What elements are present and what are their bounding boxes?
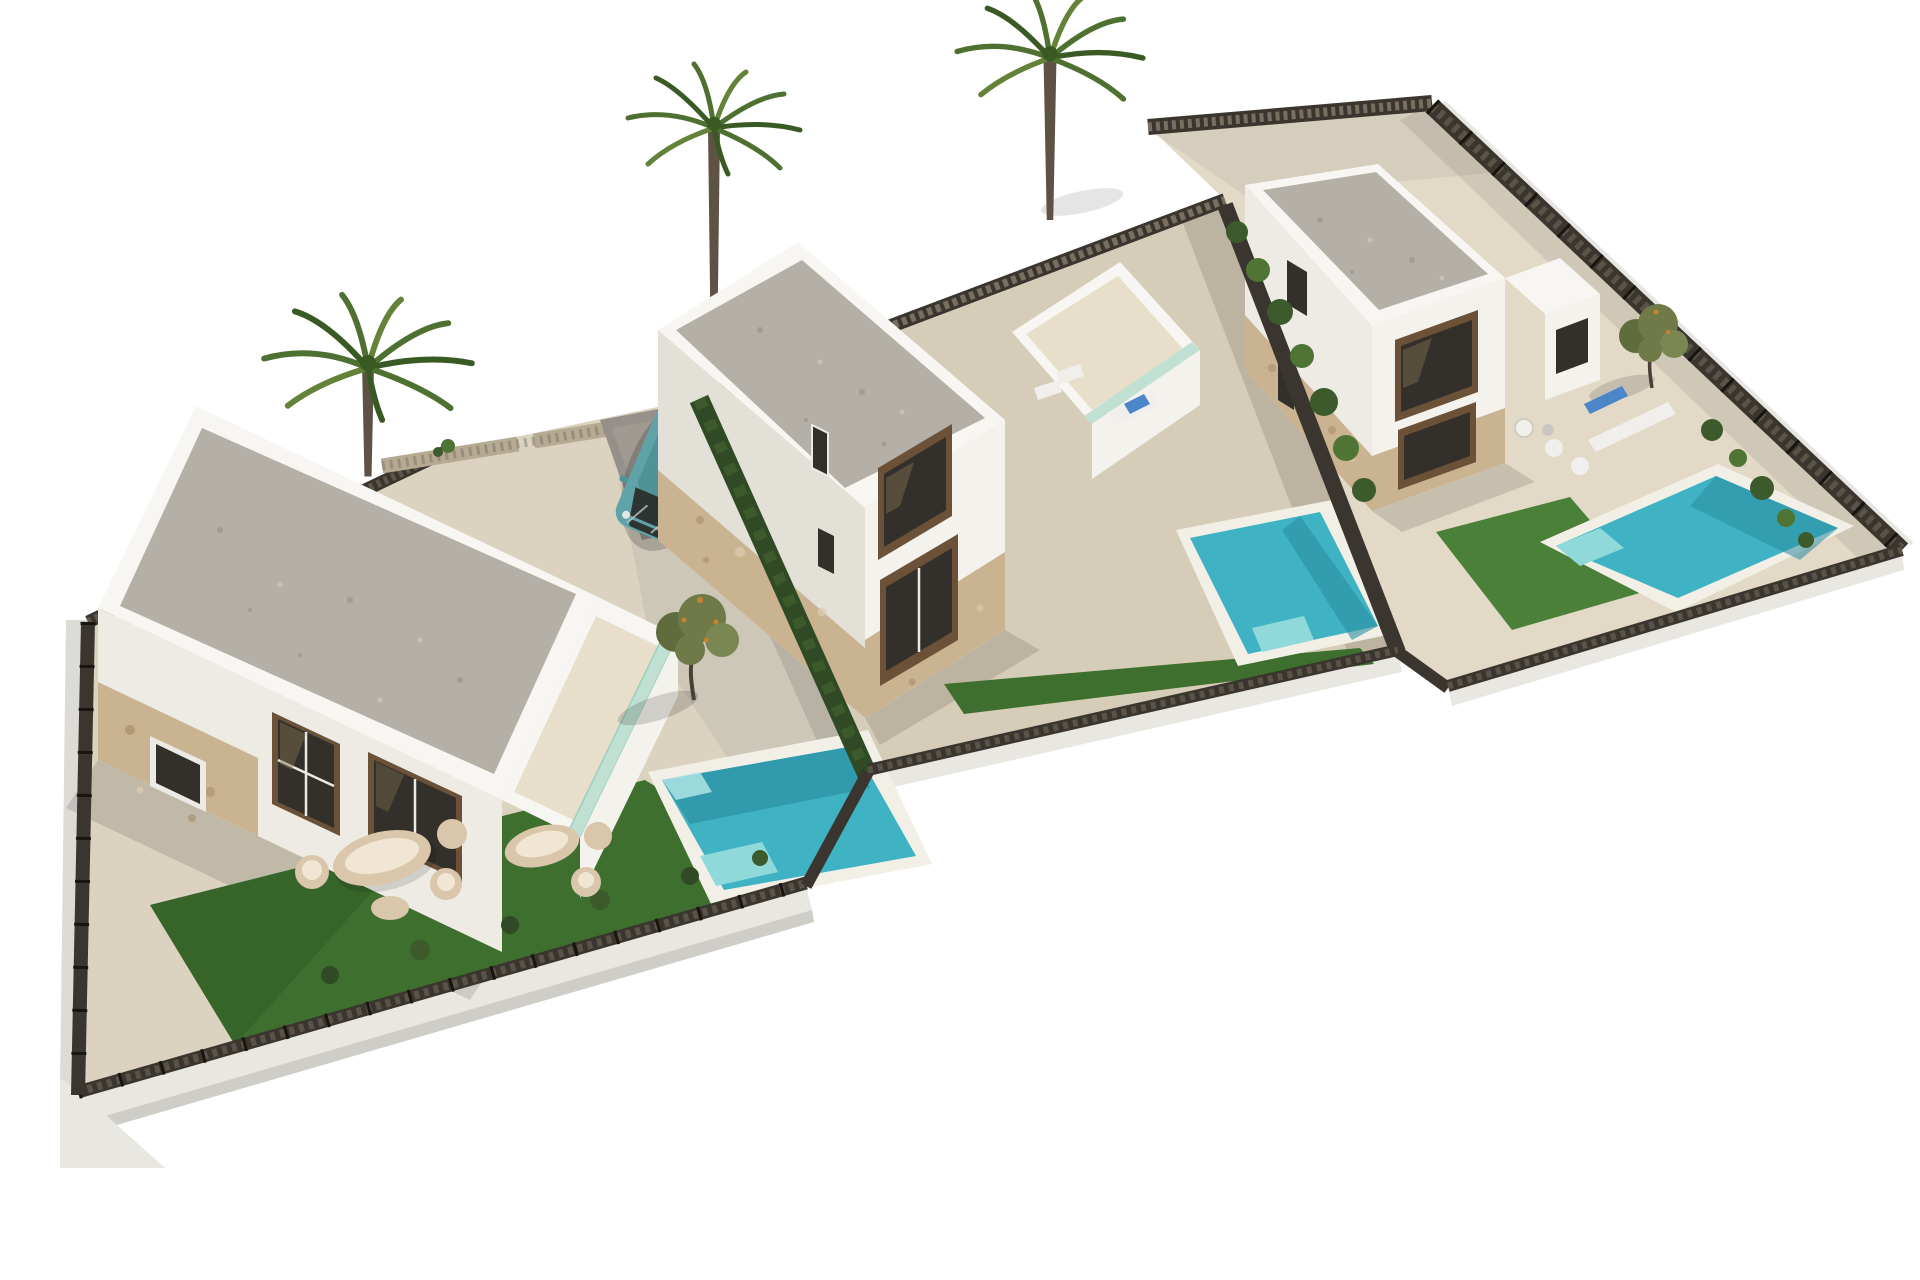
- barrel-chair-1: [584, 822, 612, 850]
- render-canvas: [0, 0, 1920, 1280]
- lounge-chair-3-seat: [437, 873, 455, 891]
- lounge-chair-1-seat: [302, 860, 322, 880]
- patio-table: [1542, 424, 1554, 436]
- pouf: [371, 896, 409, 920]
- patio-chair-1: [1515, 419, 1533, 437]
- patio-chair-2: [1545, 439, 1563, 457]
- lounge-chair-2: [437, 819, 467, 849]
- villa-middle-slit-window-1: [812, 425, 828, 476]
- patio-chair-3: [1571, 457, 1589, 475]
- fence-left-boundary: [78, 622, 88, 1095]
- barrel-chair-2-seat: [578, 872, 594, 888]
- villa-middle-slit-window-2: [818, 528, 834, 574]
